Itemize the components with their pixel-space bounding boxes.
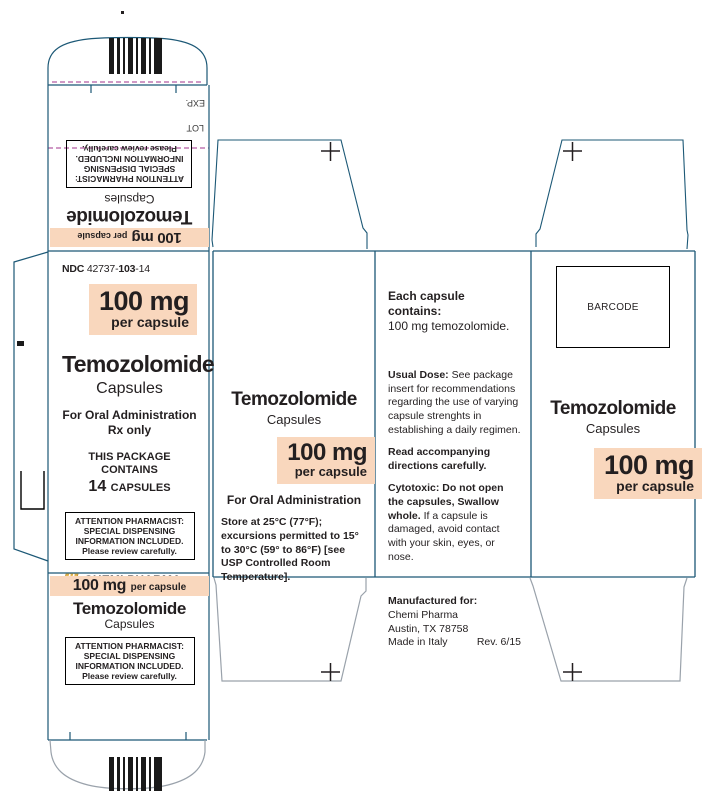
- attention-line: Please review carefully.: [70, 671, 190, 681]
- information-panel: Each capsule contains: 100 mg temozolomi…: [375, 251, 531, 577]
- strength-value: 100 mg: [132, 229, 182, 246]
- attention-box: ATTENTION PHARMACIST: SPECIAL DISPENSING…: [67, 140, 193, 188]
- attention-box: ATTENTION PHARMACIST: SPECIAL DISPENSING…: [65, 512, 195, 560]
- brand-name: Temozolomide: [73, 599, 186, 619]
- attention-line: ATTENTION PHARMACIST:: [72, 174, 188, 184]
- registration-cross-icon: [321, 142, 340, 161]
- attention-line: SPECIAL DISPENSING: [70, 651, 190, 661]
- registration-cross-icon: [563, 142, 582, 161]
- administration-route: For Oral Administration: [62, 408, 197, 422]
- strength-unit: per capsule: [604, 479, 694, 494]
- administration-route: For Oral Administration: [227, 493, 361, 507]
- attention-line: Please review carefully.: [72, 144, 188, 154]
- storage-instructions: Store at 25°C (77°F); excursions permitt…: [213, 516, 375, 584]
- inverted-branding-panel: 100 mg per capsule Temozolomide Capsules…: [50, 150, 209, 247]
- front-panel: NDC 42737-103-14 100 mg per capsule Temo…: [50, 251, 209, 573]
- contents-statement: Each capsule contains: 100 mg temozolomi…: [388, 289, 521, 334]
- dosage-form: Capsules: [586, 421, 640, 436]
- dosage-form: Capsules: [104, 617, 154, 631]
- brand-name: Temozolomide: [550, 398, 676, 420]
- ndc-part2: 103: [118, 263, 135, 275]
- top-dust-flap-middle: [212, 140, 367, 249]
- barcode-placeholder: BARCODE: [556, 266, 670, 348]
- top-dust-flap-right: [536, 140, 688, 249]
- strength-value: 100 mg: [73, 577, 126, 594]
- package-contains-label: THIS PACKAGE CONTAINS: [62, 451, 197, 477]
- cytotoxic-warning: Cytotoxic: Do not open the capsules, Swa…: [388, 482, 521, 564]
- strength-strip: 100 mg per capsule: [50, 576, 209, 596]
- ndc-part3: -14: [135, 263, 150, 275]
- attention-line: INFORMATION INCLUDED.: [70, 661, 190, 671]
- attention-line: ATTENTION PHARMACIST:: [70, 516, 190, 526]
- contents-title: Each capsule contains:: [388, 289, 465, 318]
- strength-block: 100 mg per capsule: [594, 448, 702, 499]
- attention-line: Please review carefully.: [70, 546, 190, 556]
- count-unit: CAPSULES: [111, 482, 171, 494]
- bottom-dust-flap-right: [530, 578, 687, 681]
- usual-dose: Usual Dose: See package insert for recom…: [388, 369, 521, 437]
- read-directions-note: Read accompanying directions carefully.: [388, 446, 521, 473]
- top-tuck-flap: [48, 38, 207, 86]
- ndc-number: NDC 42737-103-14: [62, 263, 197, 275]
- dosage-form: Capsules: [104, 192, 154, 206]
- carton-dieline: EXP. LOT 100 mg per capsule Temozolomide…: [0, 0, 718, 808]
- brand-name: Temozolomide: [231, 389, 357, 411]
- strength-strip: 100 mg per capsule: [50, 228, 209, 247]
- lot-label: LOT: [180, 123, 204, 133]
- fold-line-notched: [48, 85, 207, 93]
- manufacturer-city: Austin, TX 78758: [388, 623, 521, 637]
- exp-label: EXP.: [179, 98, 205, 108]
- attention-box: ATTENTION PHARMACIST: SPECIAL DISPENSING…: [65, 637, 195, 685]
- bottom-tuck-flap: [50, 740, 205, 789]
- usual-dose-label: Usual Dose:: [388, 369, 449, 381]
- bottom-dust-flap-middle: [214, 578, 366, 681]
- thumb-notch: [21, 471, 44, 509]
- bottom-branding-panel: 100 mg per capsule Temozolomide Capsules…: [50, 576, 209, 672]
- strength-unit: per capsule: [99, 315, 189, 330]
- attention-line: INFORMATION INCLUDED.: [72, 154, 188, 164]
- side-panel-right: BARCODE Temozolomide Capsules 100 mg per…: [531, 251, 695, 577]
- fold-line-bottom-notched: [48, 732, 207, 740]
- country-of-origin: Made in Italy: [388, 636, 448, 650]
- barcode-top-icon: [109, 38, 162, 74]
- manufactured-for-label: Manufactured for:: [388, 595, 521, 609]
- strength-block: 100 mg per capsule: [89, 284, 197, 335]
- manufacturer-name: Chemi Pharma: [388, 609, 521, 623]
- attention-line: SPECIAL DISPENSING: [72, 164, 188, 174]
- attention-line: ATTENTION PHARMACIST:: [70, 641, 190, 651]
- attention-line: SPECIAL DISPENSING: [70, 526, 190, 536]
- revision-number: Rev. 6/15: [477, 636, 521, 650]
- print-control-mark: [17, 341, 24, 346]
- capsule-count: 14 CAPSULES: [62, 478, 197, 496]
- manufacturer-block: Manufactured for: Chemi Pharma Austin, T…: [388, 595, 521, 650]
- registration-cross-icon: [563, 663, 582, 681]
- barcode-label: BARCODE: [587, 302, 639, 313]
- glue-flap: [14, 252, 48, 561]
- ndc-label: NDC: [62, 263, 84, 275]
- contents-value: 100 mg temozolomide.: [388, 319, 509, 333]
- strength-block: 100 mg per capsule: [277, 437, 375, 484]
- registration-cross-icon: [321, 663, 340, 681]
- rx-only: Rx only: [62, 423, 197, 437]
- brand-name: Temozolomide: [62, 351, 197, 378]
- side-panel-left: Temozolomide Capsules 100 mg per capsule…: [213, 251, 375, 577]
- registration-dot: [121, 11, 124, 14]
- count-value: 14: [88, 478, 106, 495]
- strength-value: 100 mg: [287, 441, 367, 465]
- strength-value: 100 mg: [99, 288, 189, 315]
- strength-unit: per capsule: [131, 582, 187, 593]
- dosage-form: Capsules: [267, 412, 321, 427]
- dosage-form: Capsules: [62, 380, 197, 398]
- ndc-part1: 42737-: [87, 263, 119, 275]
- strength-value: 100 mg: [604, 452, 694, 479]
- brand-name: Temozolomide: [67, 205, 193, 227]
- attention-line: INFORMATION INCLUDED.: [70, 536, 190, 546]
- strength-unit: per capsule: [287, 465, 367, 479]
- strength-unit: per capsule: [77, 231, 127, 241]
- barcode-bottom-icon: [109, 757, 162, 791]
